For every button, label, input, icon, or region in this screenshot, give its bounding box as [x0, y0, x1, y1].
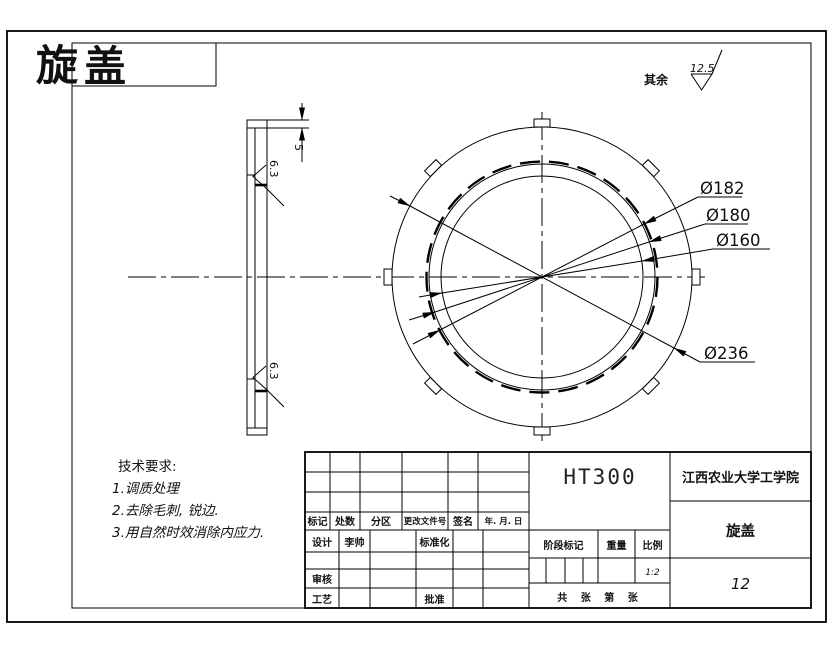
- roughness-upper-value: 6.3: [267, 160, 280, 178]
- drawing-sheet: 旋 盖 其余 12.5 5 6.3: [0, 0, 830, 654]
- title-block: 标记 处数 分区 更改文件号 签名 年. 月. 日 设计 李帅 标准化 审核 工…: [305, 452, 811, 608]
- header-count: 处数: [334, 515, 356, 528]
- dimension-thickness: 5: [267, 103, 309, 162]
- roughness-value: 12.5: [690, 62, 715, 75]
- tech-req-item-1: 1.调质处理: [112, 481, 181, 497]
- role-design: 设计: [312, 536, 332, 549]
- drawing-number: 12: [731, 575, 750, 593]
- role-standardization: 标准化: [419, 536, 450, 549]
- header-signature: 签名: [452, 515, 473, 528]
- roughness-upper: 6.3: [253, 160, 284, 206]
- title-char-outside: 旋: [36, 41, 78, 90]
- company: 江西农业大学工学院: [682, 470, 799, 486]
- roughness-lower-value: 6.3: [267, 362, 280, 380]
- dia-180-label: Ø180: [706, 206, 750, 225]
- title-char-inside: 盖: [84, 42, 126, 91]
- material: HT300: [563, 465, 636, 489]
- dia-160-label: Ø160: [716, 231, 760, 250]
- roughness-prefix: 其余: [644, 72, 669, 87]
- dimension-dia-160: Ø160: [419, 231, 770, 297]
- role-check: 审核: [312, 573, 332, 586]
- weight-label: 重量: [607, 539, 627, 552]
- roughness-lower: 6.3: [253, 362, 284, 407]
- tech-req-item-2: 2.去除毛刺, 锐边.: [112, 503, 219, 519]
- header-change-doc-no: 更改文件号: [404, 516, 447, 527]
- dia-236-label: Ø236: [704, 344, 748, 363]
- drawing-title: 旋 盖: [36, 41, 216, 91]
- scale-value: 1:2: [645, 568, 660, 578]
- tech-req-item-3: 3.用自然时效消除内应力.: [112, 525, 264, 541]
- dimension-dia-182: Ø182: [413, 179, 744, 344]
- general-roughness-note: 其余 12.5: [644, 50, 722, 90]
- cad-drawing: 旋 盖 其余 12.5 5 6.3: [0, 0, 830, 654]
- role-approve: 批准: [425, 593, 445, 606]
- dia-182-label: Ø182: [700, 179, 744, 198]
- part-name: 旋盖: [725, 522, 755, 540]
- scale-label: 比例: [643, 539, 663, 552]
- stage-mark-label: 阶段标记: [544, 539, 584, 552]
- header-date: 年. 月. 日: [485, 516, 523, 527]
- side-view: 5 6.3 6.3: [247, 103, 309, 435]
- role-process: 工艺: [312, 593, 332, 606]
- dimension-dia-180: Ø180: [409, 206, 750, 320]
- technical-requirements: 技术要求: 1.调质处理 2.去除毛刺, 锐边. 3.用自然时效消除内应力.: [112, 459, 264, 541]
- thickness-value: 5: [292, 144, 305, 151]
- designer-signature: 李帅: [344, 536, 365, 549]
- sheet-info: 共 张 第 张: [557, 591, 642, 604]
- header-zone: 分区: [371, 515, 391, 528]
- tech-req-heading: 技术要求:: [118, 459, 177, 475]
- header-mark: 标记: [307, 515, 328, 528]
